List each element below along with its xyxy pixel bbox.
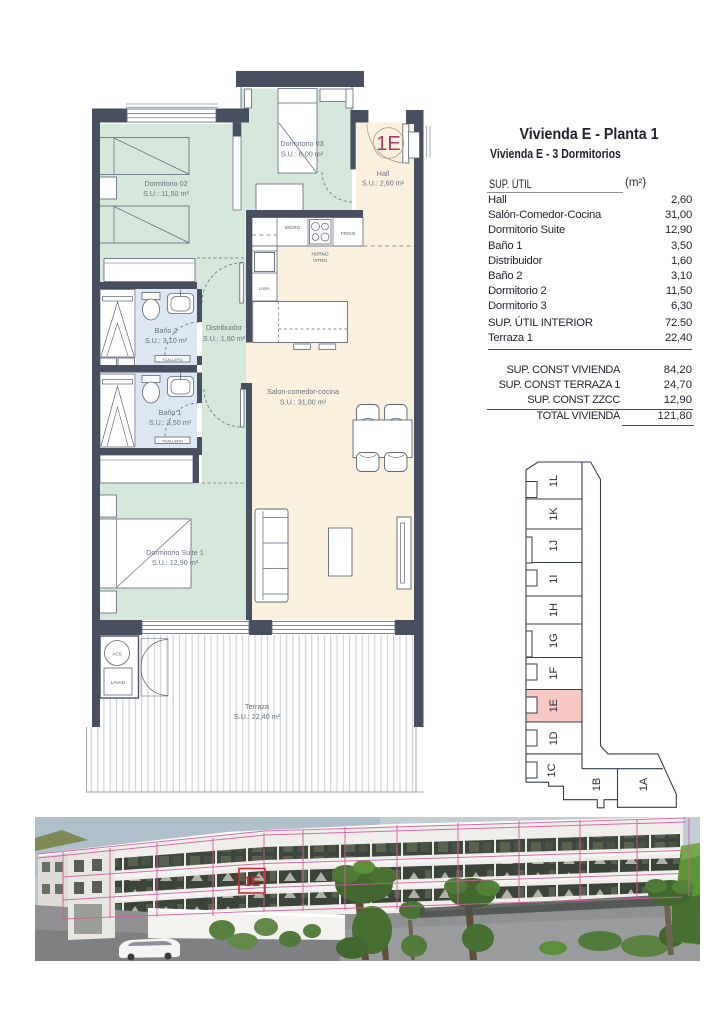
svg-text:1E: 1E <box>244 874 261 889</box>
svg-text:S.U.: 22,40 m²: S.U.: 22,40 m² <box>234 712 281 721</box>
svg-text:S.U.: 3,50 m²: S.U.: 3,50 m² <box>149 418 192 427</box>
svg-text:S.U.: 1,60 m²: S.U.: 1,60 m² <box>203 334 246 343</box>
svg-text:ACS: ACS <box>112 652 121 657</box>
svg-text:S.U.: 11,50 m²: S.U.: 11,50 m² <box>143 189 189 198</box>
svg-text:1F: 1F <box>548 667 560 680</box>
svg-text:1B: 1B <box>591 778 603 791</box>
svg-text:TOALLERO: TOALLERO <box>162 357 183 362</box>
svg-text:Terraza: Terraza <box>245 702 269 711</box>
svg-text:1I: 1I <box>548 575 560 584</box>
svg-text:Dormitorio 03: Dormitorio 03 <box>280 139 323 148</box>
svg-text:1E: 1E <box>548 699 560 712</box>
svg-text:1D: 1D <box>548 731 560 745</box>
svg-text:1C: 1C <box>546 763 558 777</box>
svg-text:1L: 1L <box>548 475 560 487</box>
svg-text:1A: 1A <box>638 777 650 791</box>
svg-text:S.U.: 6,00 m²: S.U.: 6,00 m² <box>281 150 324 159</box>
svg-text:LAVAD: LAVAD <box>111 680 126 685</box>
svg-text:VITRO: VITRO <box>313 258 327 263</box>
svg-text:Dormitorio 02: Dormitorio 02 <box>144 179 187 188</box>
svg-text:1J: 1J <box>548 540 560 552</box>
svg-text:Baño 1: Baño 1 <box>159 408 182 417</box>
svg-text:Hall: Hall <box>377 169 390 178</box>
svg-text:MICRO: MICRO <box>285 225 301 230</box>
svg-text:1K: 1K <box>548 507 560 521</box>
svg-text:1E: 1E <box>376 133 400 155</box>
svg-text:S.U.: 31,00 m²: S.U.: 31,00 m² <box>280 398 327 407</box>
svg-text:S.U.: 12,90 m²: S.U.: 12,90 m² <box>152 558 199 567</box>
svg-text:1H: 1H <box>548 603 560 617</box>
svg-text:HORNO: HORNO <box>311 252 329 257</box>
svg-text:Dormitorio Suite 1: Dormitorio Suite 1 <box>146 548 204 557</box>
svg-text:S.U.: 2,60 m²: S.U.: 2,60 m² <box>362 179 405 188</box>
svg-text:1G: 1G <box>548 633 560 648</box>
svg-text:Distribuidor: Distribuidor <box>206 323 243 332</box>
svg-text:TOALLERO: TOALLERO <box>162 439 183 444</box>
svg-text:FRIGO: FRIGO <box>341 231 356 236</box>
svg-text:Salon-comedor-cocina: Salon-comedor-cocina <box>267 387 339 396</box>
svg-text:Baño 2: Baño 2 <box>155 326 178 335</box>
svg-text:LAVA: LAVA <box>258 286 270 291</box>
svg-text:S.U.: 3,10 m²: S.U.: 3,10 m² <box>145 336 188 345</box>
